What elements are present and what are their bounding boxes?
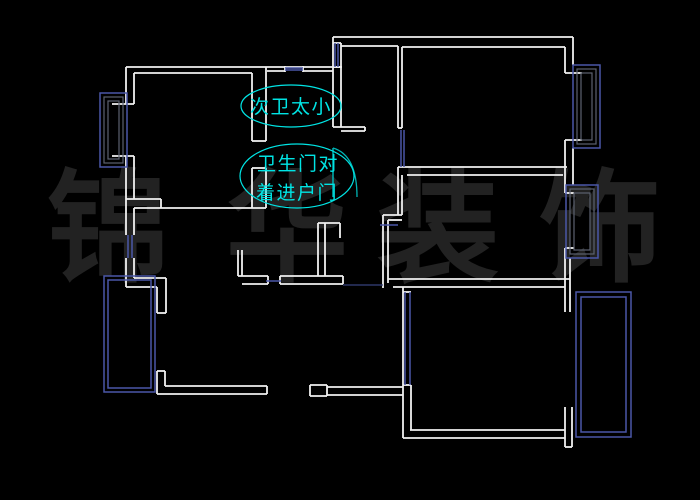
window-balcony-rect bbox=[104, 276, 155, 392]
annotation-text: 卫生门对 bbox=[257, 153, 339, 175]
window-balcony-rect bbox=[566, 185, 598, 258]
floorplan-drawing: 次卫太小卫生门对着进户门 bbox=[0, 0, 700, 500]
annotation-text: 着进户门 bbox=[256, 182, 338, 204]
window-balcony-rect bbox=[576, 292, 631, 437]
window-balcony-rect bbox=[581, 297, 626, 432]
window-balcony-rect bbox=[108, 280, 151, 388]
annotations-layer: 次卫太小卫生门对着进户门 bbox=[240, 85, 354, 208]
window-frame-rect bbox=[577, 69, 596, 144]
walls-layer bbox=[112, 37, 582, 447]
window-frame-rect bbox=[581, 73, 592, 140]
window-frame-rect bbox=[108, 101, 119, 159]
window-frame-rect bbox=[104, 97, 123, 163]
annotation-text: 次卫太小 bbox=[250, 96, 332, 118]
floorplan-canvas: 锦华装饰 次卫太小卫生门对着进户门 bbox=[0, 0, 700, 500]
windows-layer bbox=[100, 43, 631, 437]
window-frame-rect bbox=[574, 193, 590, 250]
